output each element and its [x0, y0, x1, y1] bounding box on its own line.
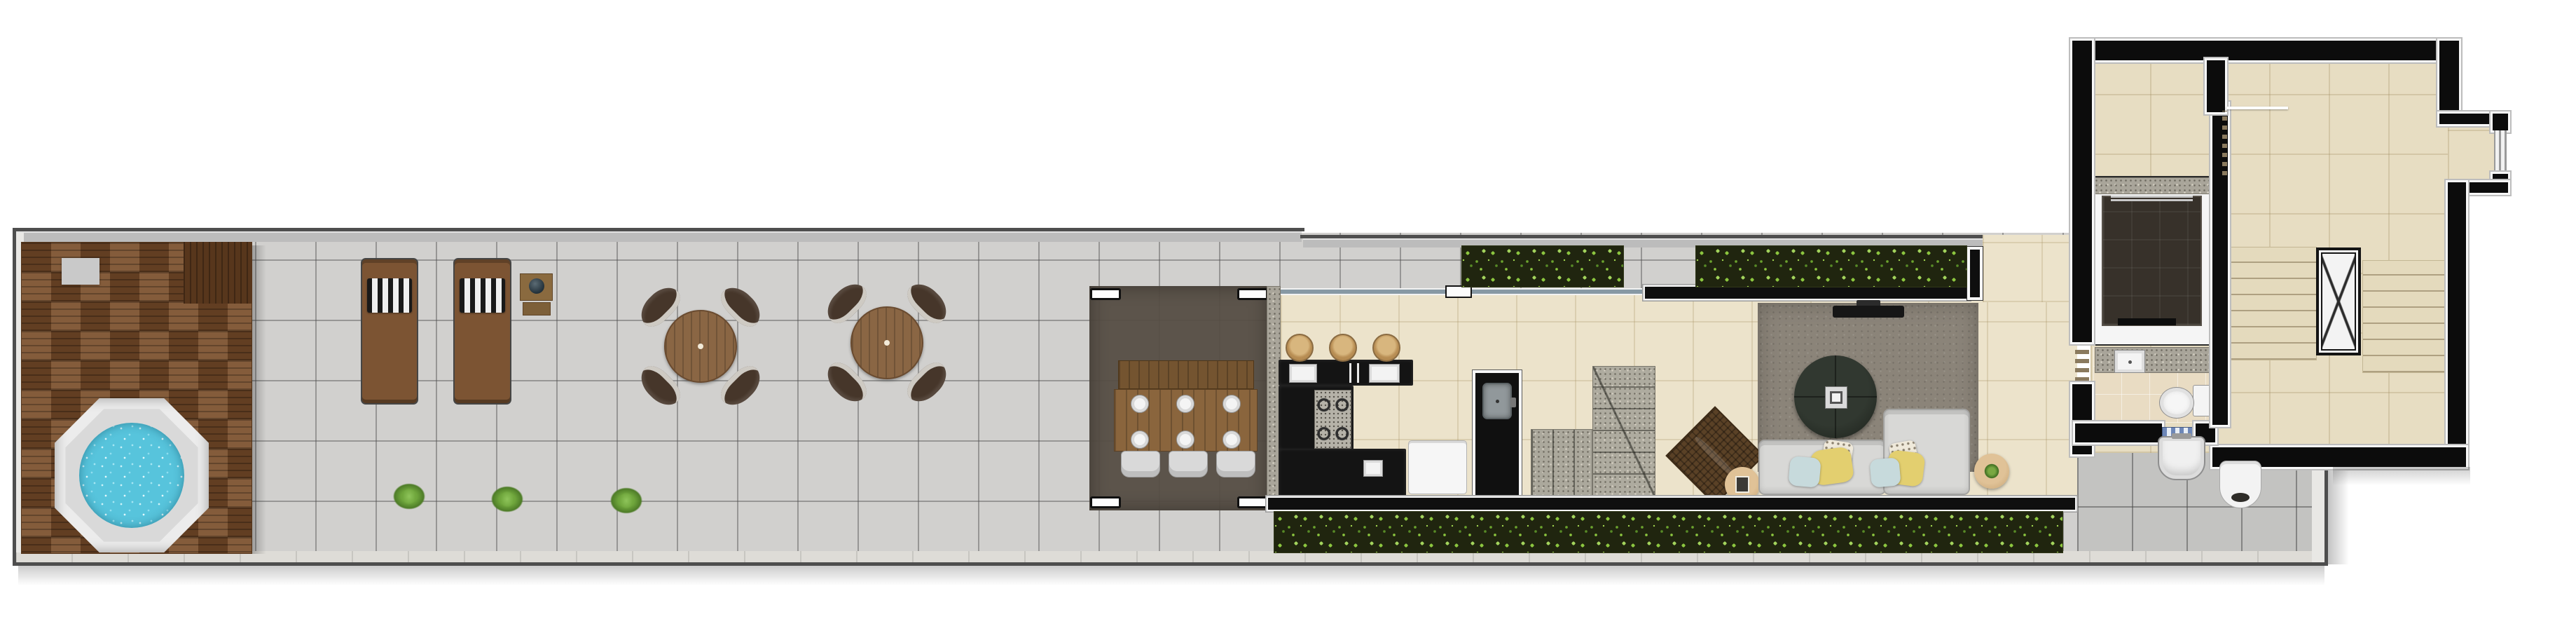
- dining-chair-1: [1121, 451, 1160, 477]
- hot-tub: [55, 398, 209, 552]
- place-setting-1: [1131, 395, 1149, 413]
- bar-stool-1: [1286, 334, 1314, 362]
- tower-wall-left-lower: [2072, 384, 2092, 454]
- dining-chair-3: [1216, 451, 1255, 477]
- cutting-board-2: [1369, 364, 1400, 383]
- place-setting-4: [1131, 430, 1149, 449]
- dining-bench: [1118, 360, 1254, 389]
- stair-lower-flight: [1531, 429, 1592, 497]
- pergola-post-se: [1237, 496, 1268, 508]
- place-setting-3: [1222, 395, 1241, 413]
- tower-wall-top: [2072, 41, 2459, 60]
- toilet-tank: [2193, 385, 2211, 416]
- hall-door-swing: [2226, 107, 2288, 109]
- elevator-cabin: [2102, 196, 2202, 326]
- ustair-flight-right: [2362, 260, 2448, 373]
- place-setting-5: [1176, 430, 1194, 449]
- shrub-3: [604, 482, 649, 519]
- bay-window: [2494, 130, 2507, 174]
- bistro2-table: [850, 306, 923, 379]
- bar-stool-2: [1329, 334, 1357, 362]
- south-solid-wall: [1268, 498, 2075, 510]
- hall-door-leaf: [2222, 111, 2227, 175]
- shadow-bottom: [18, 566, 2324, 585]
- coffee-table: [1794, 355, 1877, 438]
- refrigerator: [1408, 440, 1467, 494]
- planter-end-frame: [1967, 247, 1983, 300]
- south-hedge: [1274, 511, 2063, 553]
- sun-lounger-1: [361, 258, 418, 405]
- shrub-1: [387, 478, 432, 515]
- deck-shadow: [252, 245, 266, 554]
- closet-partition: [2207, 60, 2225, 112]
- bay-wall-right-a: [2493, 114, 2508, 130]
- tower-left-door: [2075, 345, 2089, 381]
- deck-dark-section: [184, 242, 252, 304]
- cutlery-set: [1348, 363, 1362, 383]
- north-solid-wall: [1645, 287, 1969, 299]
- rooftop-floor-plan: [0, 0, 2576, 631]
- ustair-duct: [2316, 247, 2361, 355]
- place-setting-2: [1176, 395, 1194, 413]
- tower-wall-left-upper: [2072, 41, 2092, 342]
- magazine-side-table: [1725, 467, 1760, 502]
- pergola-post-sw: [1090, 496, 1121, 508]
- plant-side-table: [1974, 454, 2009, 489]
- bathroom-vanity: [2095, 347, 2211, 373]
- cutting-board-1: [1289, 364, 1317, 383]
- shrub-2: [485, 481, 530, 517]
- dining-chair-2: [1169, 451, 1208, 477]
- toilet-bowl: [2159, 387, 2194, 419]
- tower-wall-right-lower: [2448, 182, 2466, 453]
- bath-south-wall-a: [2075, 423, 2162, 442]
- shadow-below-tower: [2333, 467, 2470, 485]
- sun-lounger-2: [453, 258, 511, 405]
- pergola-post-ne: [1237, 288, 1268, 300]
- water-heater: [2219, 461, 2261, 508]
- lounger-side-table: [520, 273, 553, 301]
- ustair-flight-left: [2229, 247, 2317, 360]
- north-hedge-a: [1461, 245, 1624, 287]
- cooktop: [1314, 390, 1351, 449]
- elevator-masonry-band: [2093, 177, 2211, 194]
- deck-mat: [62, 258, 99, 285]
- vanity-sink: [2114, 350, 2145, 373]
- pillow-blue-1: [1788, 456, 1821, 488]
- counter-tray: [1363, 460, 1383, 477]
- bar-stool-3: [1372, 334, 1400, 362]
- laundry-tub: [2158, 436, 2205, 480]
- top-parapet-left: [15, 231, 1302, 242]
- pillow-blue-2: [1869, 457, 1901, 488]
- bistro1-table: [664, 310, 737, 383]
- tower-wall-right-upper: [2439, 41, 2459, 119]
- tv-panel: [1833, 306, 1904, 318]
- pergola-post-nw: [1090, 288, 1121, 300]
- place-setting-6: [1222, 430, 1241, 449]
- stair-winder-flight: [1592, 366, 1655, 497]
- lounger-side-table-small: [523, 302, 551, 315]
- entry-floor: [1983, 235, 2077, 302]
- island-sink: [1482, 383, 1512, 419]
- kitchen-counter-south: [1279, 449, 1406, 498]
- north-hedge-b: [1695, 245, 1967, 287]
